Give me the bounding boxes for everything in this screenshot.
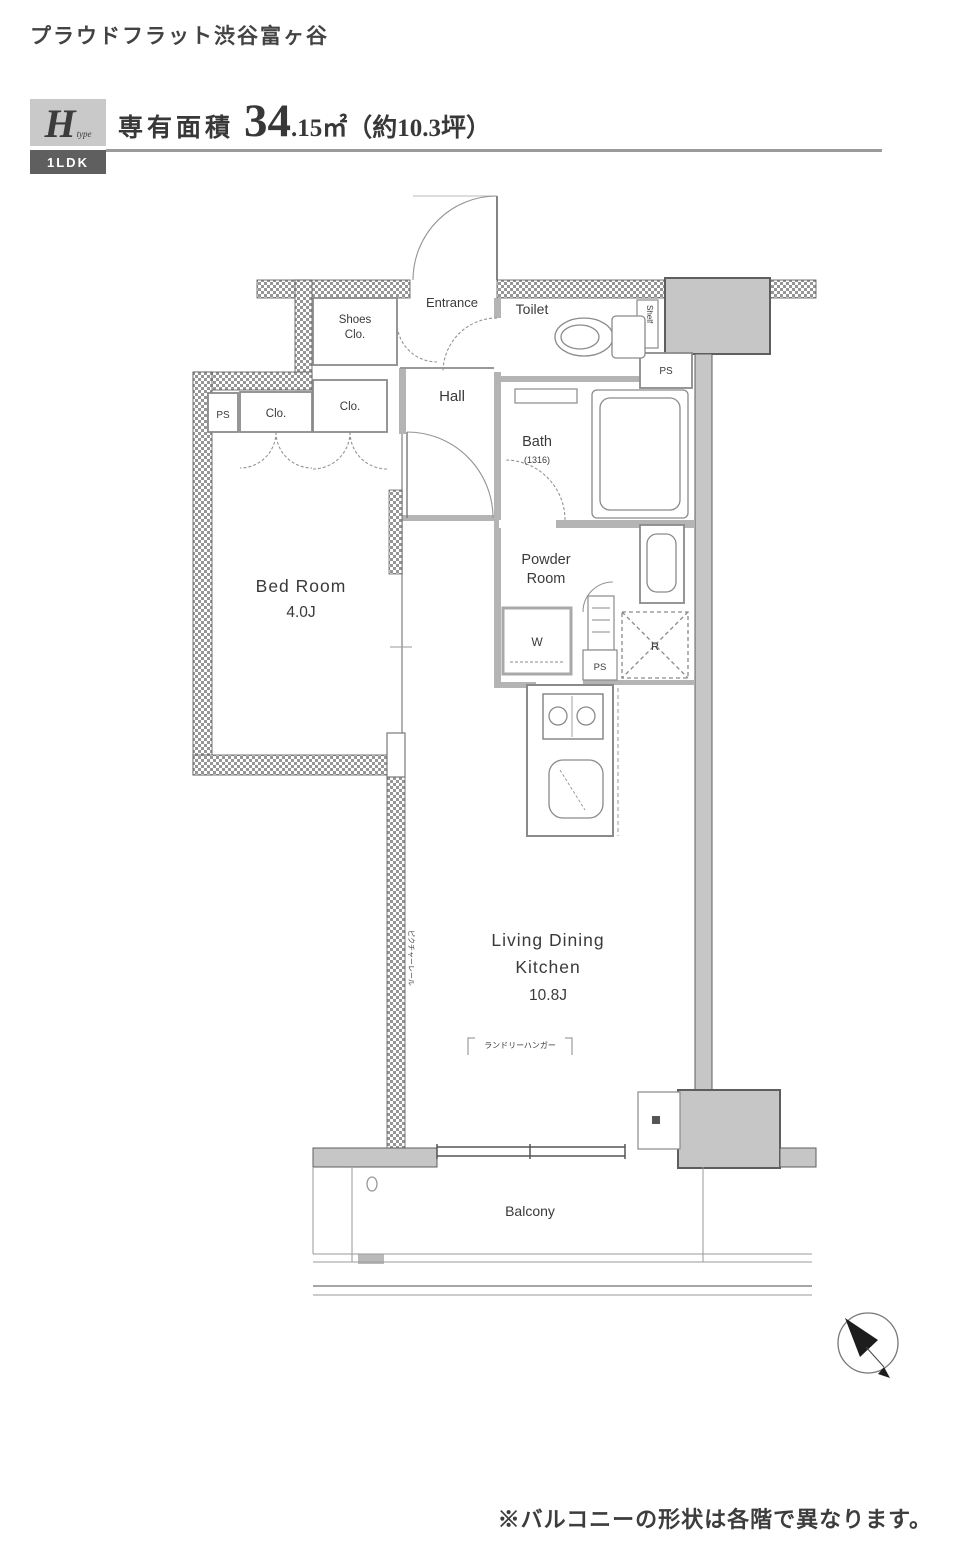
pipe-space-right-label: PS [659, 366, 673, 377]
shoes-door-arc [397, 322, 437, 362]
floorplan-drawing: Shoes Clo. Entrance Toilet Hall PS Clo. … [0, 0, 960, 1563]
toilet-shelf-label: Shelf [645, 305, 654, 324]
toilet-bowl-inner [561, 325, 599, 349]
compass-tail-tip [878, 1367, 890, 1378]
bath-label: Bath [522, 434, 552, 450]
powder-room-label-1: Powder [521, 552, 570, 568]
powder-room-label-2: Room [527, 571, 566, 587]
pipe-space-left-label: PS [216, 410, 230, 421]
balcony-drain [367, 1177, 377, 1191]
vanity-bowl [647, 534, 676, 592]
pipe-space-small-label: PS [594, 662, 607, 673]
toilet-label: Toilet [516, 301, 549, 317]
hall-label: Hall [439, 388, 465, 405]
burner-1 [549, 707, 567, 725]
washer-label: W [531, 635, 543, 649]
closet2-door-arc-left [313, 432, 350, 469]
closet1-label: Clo. [266, 408, 286, 420]
ldk-window [437, 1144, 625, 1159]
wall-window-box [387, 733, 405, 777]
entrance-label: Entrance [426, 295, 478, 310]
compass-needle [845, 1318, 878, 1357]
bath-size-label: (1316) [524, 455, 550, 465]
wall-annotation-label: ピクチャーレール [407, 930, 415, 986]
bedroom-sliding-door [389, 490, 402, 574]
closet1-door-arc-left [240, 432, 276, 468]
shoes-closet-label-2: Clo. [345, 329, 365, 341]
entrance-door-arc [413, 196, 497, 280]
bedroom-size-label: 4.0J [286, 604, 315, 621]
kitchen-sink [549, 760, 603, 818]
laundry-hanger-label: ランドリーハンガー [484, 1040, 556, 1050]
closet2-door-arc-right [350, 432, 387, 469]
linen-shelf-box [588, 596, 614, 650]
closet1-door-arc-right [276, 432, 312, 468]
bathtub-inner [600, 398, 680, 510]
bath-door-arc [505, 460, 565, 520]
compass [838, 1313, 898, 1378]
burner-2 [577, 707, 595, 725]
closet2-label: Clo. [340, 401, 360, 413]
hall-door-arc [407, 432, 493, 518]
ldk-size-label: 10.8J [529, 987, 567, 1004]
compass-tail [866, 1347, 884, 1367]
bedroom-label: Bed Room [256, 576, 347, 596]
bath-counter [515, 389, 577, 403]
shoes-closet-label-1: Shoes [339, 314, 372, 326]
ldk-label-2: Kitchen [515, 957, 580, 977]
outlet-symbol [652, 1116, 660, 1124]
balcony-footnote: ※バルコニーの形状は各階で異なります。 [498, 1502, 932, 1534]
ldk-label-1: Living Dining [491, 930, 604, 950]
toilet-tank [612, 316, 645, 358]
refrigerator-label: R [651, 641, 659, 653]
toilet-door-arc [443, 318, 497, 372]
balcony-label: Balcony [505, 1203, 555, 1219]
